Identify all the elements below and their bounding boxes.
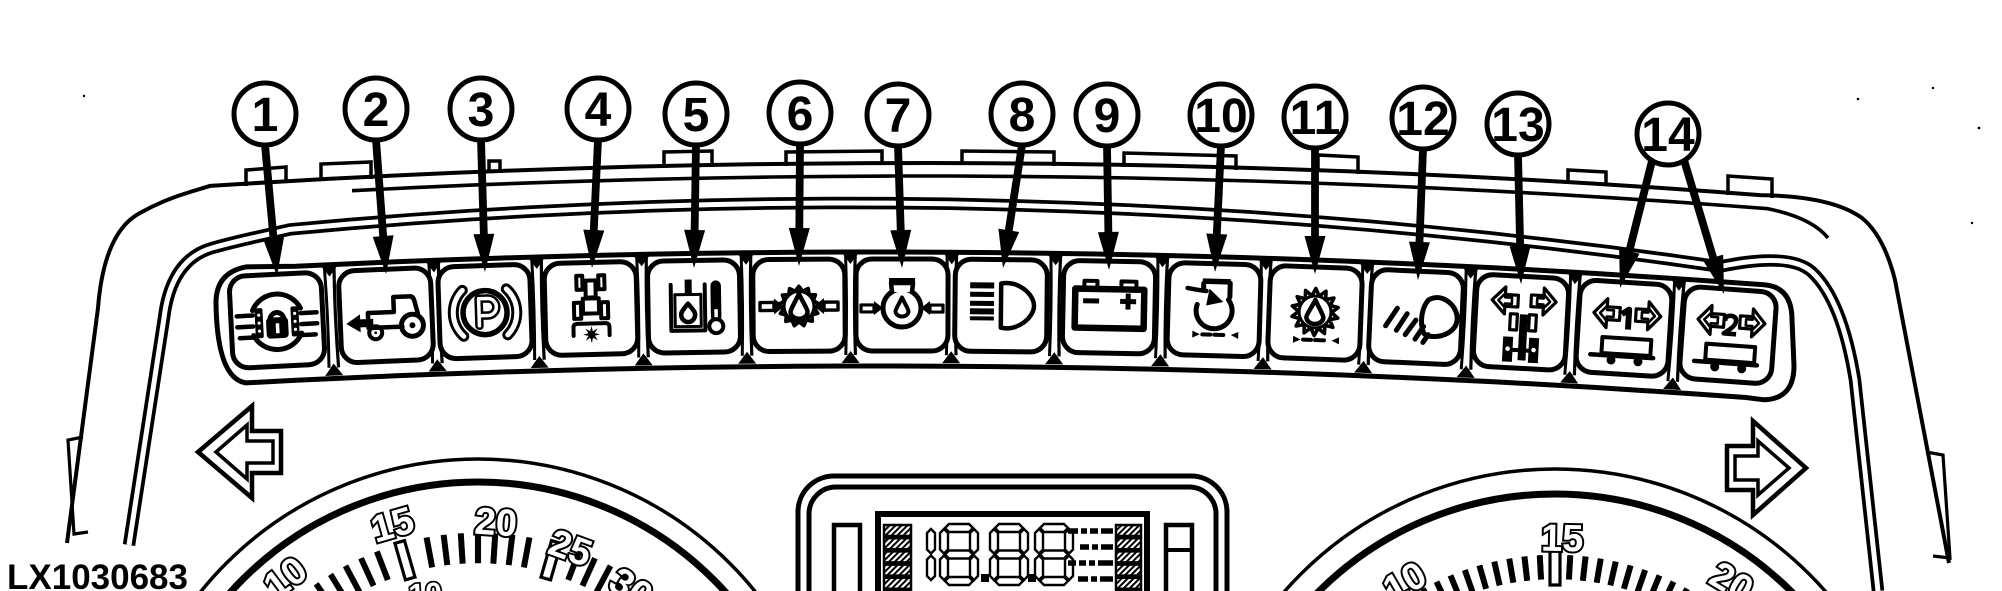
svg-text:13: 13 (1491, 99, 1544, 152)
svg-text:14: 14 (1641, 109, 1695, 162)
svg-text:5: 5 (683, 89, 710, 142)
svg-text:2: 2 (363, 84, 390, 137)
svg-text:8: 8 (1009, 89, 1036, 142)
svg-text:15: 15 (1541, 518, 1584, 561)
svg-text:3: 3 (468, 84, 495, 137)
svg-text:1: 1 (252, 89, 279, 142)
svg-text:20: 20 (473, 501, 518, 546)
svg-text:11: 11 (1290, 92, 1341, 145)
svg-text:9: 9 (1094, 90, 1121, 143)
svg-text:10: 10 (408, 577, 444, 591)
svg-text:7: 7 (885, 90, 912, 143)
svg-text:10: 10 (1194, 90, 1247, 143)
svg-text:12: 12 (1396, 93, 1449, 146)
svg-text:LX1030683: LX1030683 (7, 558, 188, 591)
svg-text:4: 4 (585, 84, 612, 137)
svg-text:6: 6 (787, 88, 814, 141)
